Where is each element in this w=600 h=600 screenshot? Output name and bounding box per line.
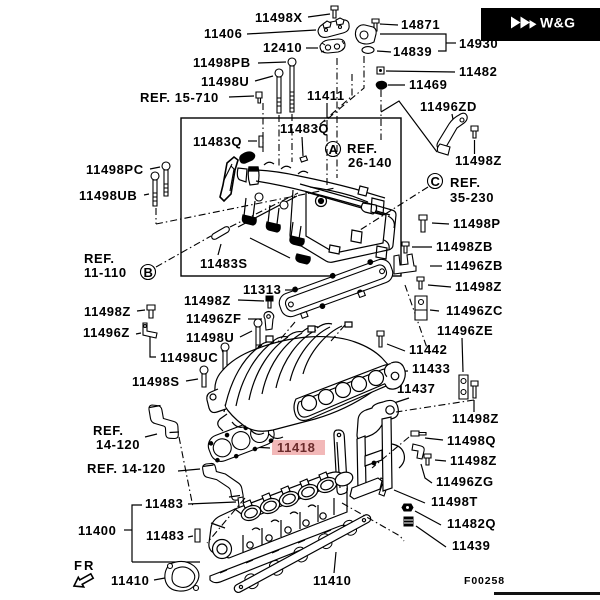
svg-text:11496ZB: 11496ZB <box>446 258 503 273</box>
svg-text:14-120: 14-120 <box>96 437 140 452</box>
svg-text:11442: 11442 <box>409 342 447 357</box>
svg-text:11498Z: 11498Z <box>84 304 131 319</box>
svg-text:11498U: 11498U <box>201 74 249 89</box>
svg-text:11496ZE: 11496ZE <box>437 323 493 338</box>
svg-text:11469: 11469 <box>409 77 447 92</box>
svg-text:11410: 11410 <box>313 573 351 588</box>
svg-text:REF.: REF. <box>347 141 378 156</box>
svg-text:REF. 15-710: REF. 15-710 <box>140 90 219 105</box>
svg-text:11482Q: 11482Q <box>447 516 496 531</box>
svg-text:14930: 14930 <box>459 36 498 51</box>
svg-text:FR: FR <box>74 558 95 573</box>
svg-text:REF. 14-120: REF. 14-120 <box>87 461 166 476</box>
svg-text:35-230: 35-230 <box>450 190 494 205</box>
svg-text:11411: 11411 <box>307 88 345 103</box>
svg-text:11400: 11400 <box>78 523 116 538</box>
svg-text:11498S: 11498S <box>132 374 180 389</box>
svg-text:11498Z: 11498Z <box>455 153 502 168</box>
svg-text:11-110: 11-110 <box>84 265 127 280</box>
svg-text:11498PC: 11498PC <box>86 162 144 177</box>
svg-text:11498Q: 11498Q <box>447 433 496 448</box>
svg-text:11496ZD: 11496ZD <box>420 99 477 114</box>
svg-text:11496Z: 11496Z <box>83 325 130 340</box>
svg-text:11498P: 11498P <box>453 216 501 231</box>
svg-text:12410: 12410 <box>263 40 302 55</box>
svg-text:11498PB: 11498PB <box>193 55 251 70</box>
svg-text:11482: 11482 <box>459 64 497 79</box>
svg-text:REF.: REF. <box>450 175 481 190</box>
svg-text:11498UB: 11498UB <box>79 188 137 203</box>
svg-text:11498UC: 11498UC <box>160 350 218 365</box>
svg-text:11498ZB: 11498ZB <box>436 239 493 254</box>
svg-text:11483: 11483 <box>145 496 183 511</box>
svg-text:W&G: W&G <box>540 15 575 31</box>
svg-text:11496ZC: 11496ZC <box>446 303 503 318</box>
svg-text:11483S: 11483S <box>200 256 248 271</box>
svg-text:F00258: F00258 <box>464 575 505 587</box>
svg-text:11483Q: 11483Q <box>193 134 242 149</box>
svg-text:11410: 11410 <box>111 573 149 588</box>
svg-text:14839: 14839 <box>393 44 432 59</box>
svg-text:11498T: 11498T <box>431 494 478 509</box>
svg-text:11433: 11433 <box>412 361 450 376</box>
svg-text:11439: 11439 <box>452 538 490 553</box>
svg-text:11483: 11483 <box>146 528 184 543</box>
svg-text:11406: 11406 <box>204 26 242 41</box>
svg-text:11498X: 11498X <box>255 10 303 25</box>
svg-text:14871: 14871 <box>401 17 440 32</box>
svg-text:11496ZF: 11496ZF <box>186 311 242 326</box>
svg-text:B: B <box>144 265 154 280</box>
svg-text:11498Z: 11498Z <box>450 453 497 468</box>
svg-text:26-140: 26-140 <box>348 155 392 170</box>
svg-text:C: C <box>431 174 441 189</box>
svg-text:11498Z: 11498Z <box>452 411 499 426</box>
svg-text:11498U: 11498U <box>186 330 234 345</box>
svg-text:11313: 11313 <box>243 282 281 297</box>
svg-text:11498Z: 11498Z <box>455 279 502 294</box>
svg-text:REF.: REF. <box>93 423 124 438</box>
svg-text:11496ZG: 11496ZG <box>436 474 494 489</box>
svg-text:REF.: REF. <box>84 251 115 266</box>
svg-text:11498Z: 11498Z <box>184 293 231 308</box>
svg-text:11418: 11418 <box>277 440 315 455</box>
